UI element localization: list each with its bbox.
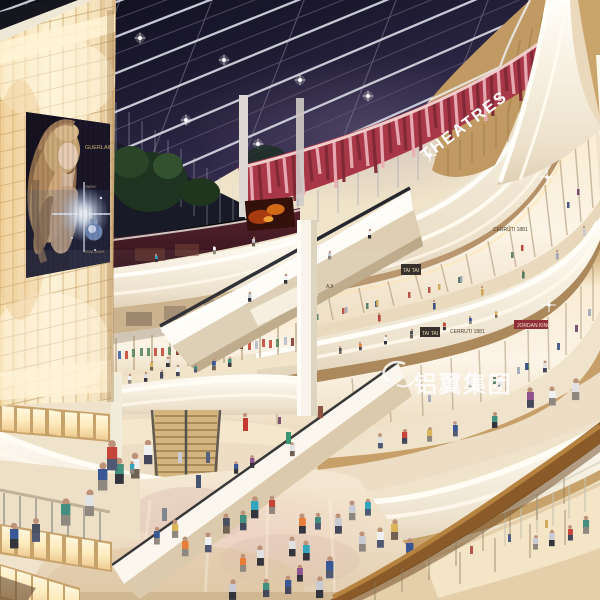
svg-text:GUERLAIN: GUERLAIN	[85, 145, 113, 151]
svg-text:CERRUTI 1881: CERRUTI 1881	[493, 227, 528, 233]
svg-text:PARIS: PARIS	[84, 184, 96, 189]
svg-text:铝翼集团: 铝翼集团	[414, 371, 512, 397]
